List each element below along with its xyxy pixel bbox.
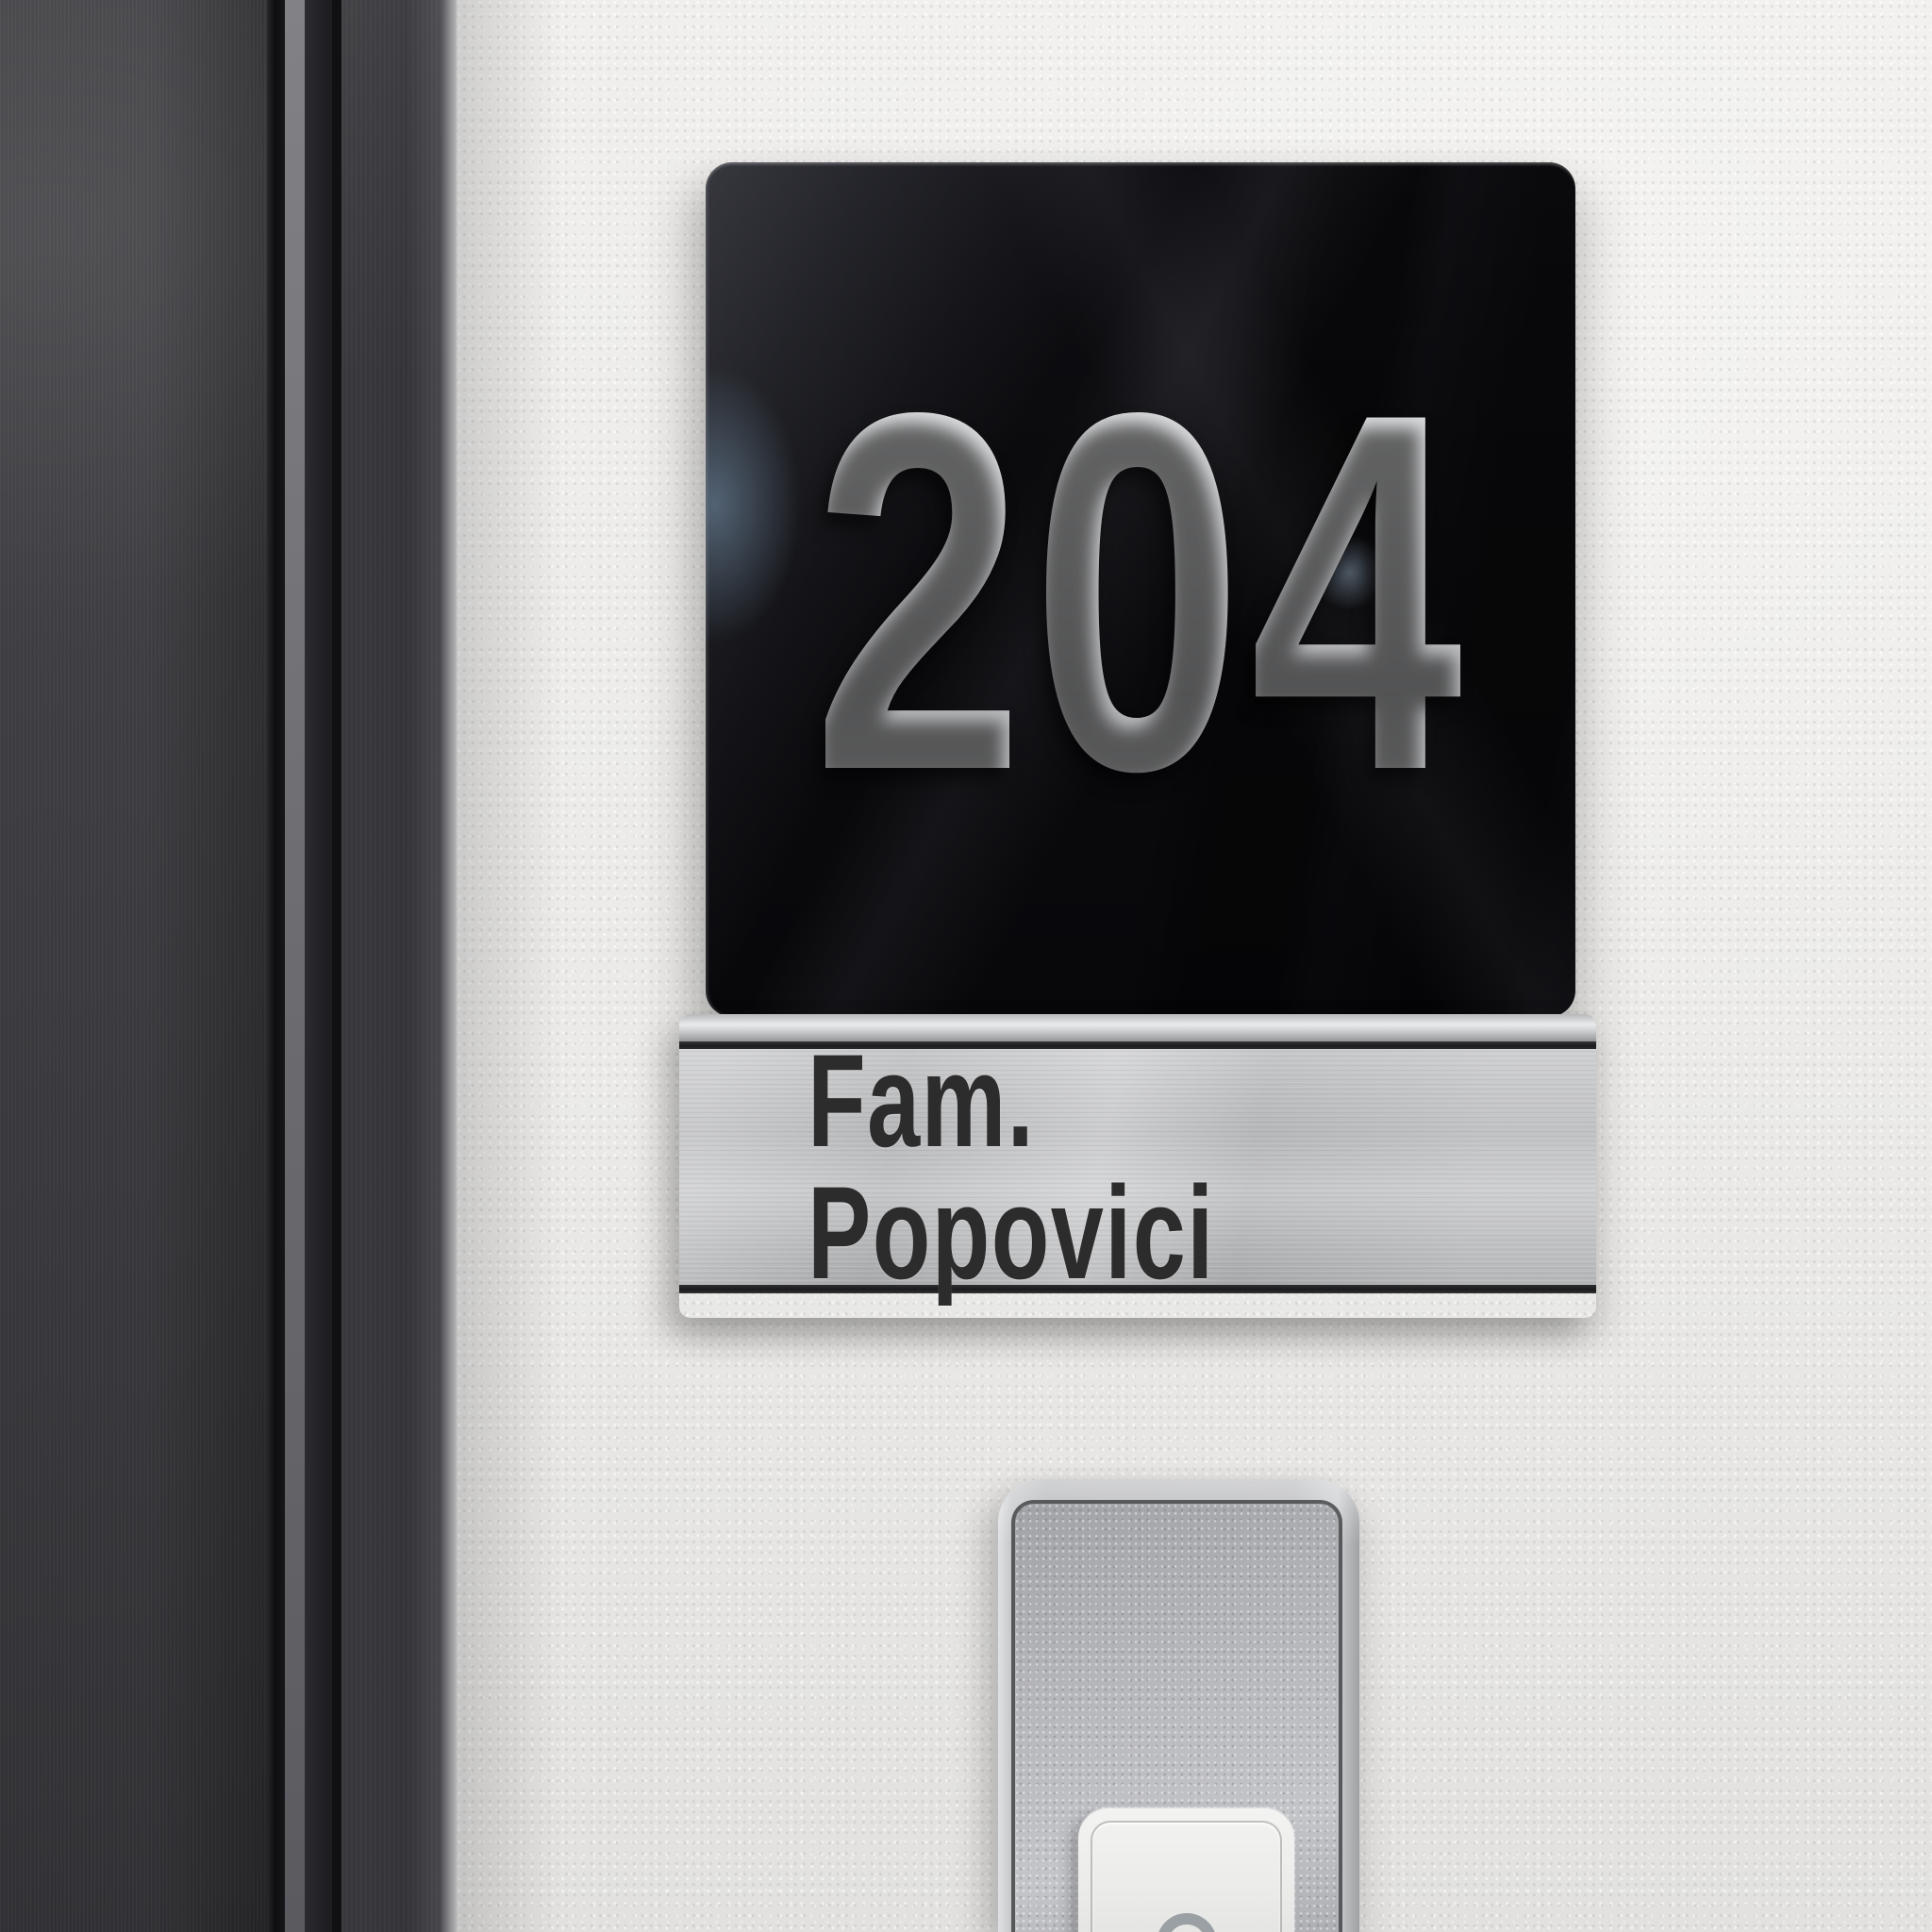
nameplate: Fam. Popovici bbox=[679, 1049, 1596, 1285]
door-groove bbox=[267, 0, 285, 1932]
room-number: 204 bbox=[812, 338, 1469, 847]
door-frame-member bbox=[341, 0, 441, 1932]
door-frame-edge bbox=[441, 0, 457, 1932]
nameplate-holder: Fam. Popovici bbox=[679, 1014, 1596, 1318]
door-frame-gap bbox=[332, 0, 341, 1932]
bell-icon bbox=[1157, 1913, 1217, 1932]
doorbell-button[interactable] bbox=[1078, 1808, 1294, 1932]
door-entrance-photo: 204 Fam. Popovici bbox=[0, 0, 1932, 1932]
nameplate-text: Fam. Popovici bbox=[808, 1035, 1468, 1299]
door-frame-highlight bbox=[285, 0, 305, 1932]
doorbell bbox=[998, 1479, 1359, 1932]
door-frame bbox=[0, 0, 457, 1932]
doorbell-plate bbox=[1015, 1504, 1339, 1932]
door-panel bbox=[0, 0, 267, 1932]
door-frame-recess bbox=[305, 0, 332, 1932]
room-number-sign: 204 bbox=[706, 162, 1575, 1017]
